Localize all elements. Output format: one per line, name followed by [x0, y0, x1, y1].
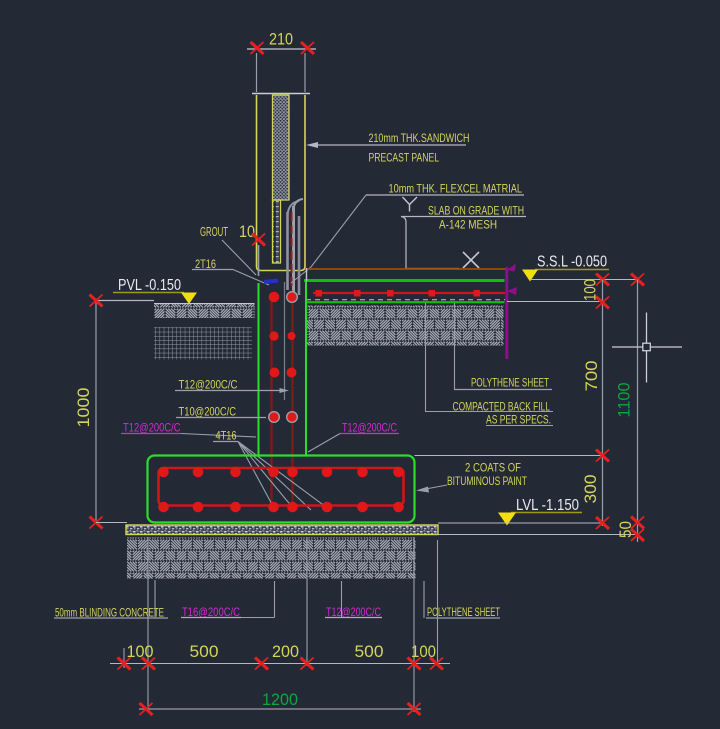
- svg-text:T12@200C/C: T12@200C/C: [179, 378, 238, 392]
- svg-text:T12@200C/C: T12@200C/C: [123, 421, 181, 435]
- svg-text:100: 100: [411, 642, 436, 661]
- svg-text:LVL -1.150: LVL -1.150: [516, 497, 579, 514]
- svg-text:POLYTHENE SHEET: POLYTHENE SHEET: [471, 376, 549, 390]
- svg-text:1000: 1000: [75, 388, 93, 428]
- svg-text:PVL -0.150: PVL -0.150: [118, 277, 181, 294]
- svg-text:4T16: 4T16: [216, 429, 237, 443]
- svg-text:S.S.L -0.050: S.S.L -0.050: [537, 254, 607, 271]
- svg-text:2 COATS OF: 2 COATS OF: [465, 461, 521, 475]
- svg-text:BITUMINOUS PAINT: BITUMINOUS PAINT: [447, 474, 527, 488]
- svg-text:100: 100: [127, 642, 154, 661]
- svg-text:SLAB ON GRADE WITH: SLAB ON GRADE WITH: [428, 204, 524, 218]
- svg-text:A-142 MESH: A-142 MESH: [439, 218, 497, 232]
- svg-text:1200: 1200: [262, 690, 298, 709]
- svg-text:210: 210: [269, 31, 293, 49]
- svg-text:T12@200C/C: T12@200C/C: [342, 421, 397, 435]
- svg-text:PRECAST PANEL: PRECAST PANEL: [369, 151, 440, 165]
- svg-text:700: 700: [583, 361, 601, 392]
- svg-text:50: 50: [617, 521, 635, 538]
- svg-text:500: 500: [190, 642, 219, 661]
- svg-text:10mm THK. FLEXCEL MATRIAL: 10mm THK. FLEXCEL MATRIAL: [389, 182, 523, 196]
- svg-text:200: 200: [272, 642, 299, 661]
- svg-text:100: 100: [581, 279, 599, 301]
- svg-text:AS PER SPECS.: AS PER SPECS.: [486, 413, 551, 427]
- svg-text:300: 300: [582, 475, 600, 504]
- svg-text:210mm THK.SANDWICH: 210mm THK.SANDWICH: [369, 131, 470, 145]
- svg-text:T10@200C/C: T10@200C/C: [179, 405, 237, 419]
- svg-text:10: 10: [239, 222, 255, 241]
- svg-text:GROUT: GROUT: [200, 224, 228, 239]
- svg-text:1100: 1100: [615, 383, 633, 418]
- svg-text:500: 500: [355, 642, 384, 661]
